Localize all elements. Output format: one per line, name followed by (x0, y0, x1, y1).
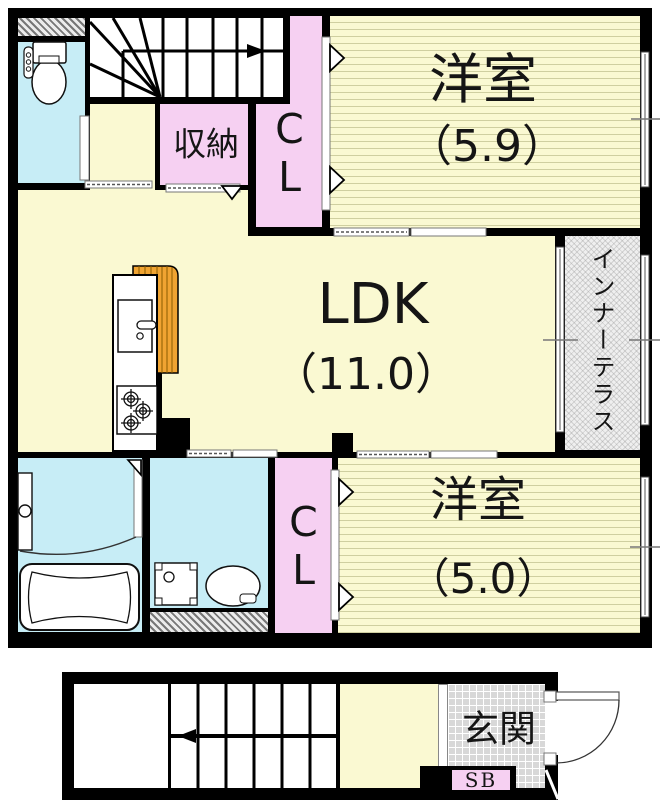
western-room-bottom-label: 洋室 (430, 476, 526, 524)
western-room-bottom-area: （5.0） (408, 558, 559, 600)
ldk-room-main (18, 236, 555, 452)
ldk-label: LDK (317, 277, 428, 333)
western-room-top-area: （5.9） (408, 125, 566, 169)
bathroom (18, 458, 142, 632)
stair-landing (74, 684, 168, 788)
inner-terrace-label: インナーテラス (589, 247, 613, 436)
ldk-room-upper (18, 190, 248, 236)
staircase-upper-area (90, 18, 283, 97)
storage-label: 収納 (173, 128, 239, 161)
upper-hallway (90, 104, 155, 190)
closet-bottom-label: CL (283, 498, 324, 594)
front-door-arc (556, 700, 619, 763)
western-room-top-label: 洋室 (429, 53, 537, 107)
shoe-box-label: SB (465, 770, 497, 790)
ldk-area-label: （11.0） (273, 353, 459, 397)
washroom-hatch-strip (150, 612, 268, 632)
staircase-lower-area (171, 684, 336, 788)
washroom (150, 458, 268, 608)
front-door-leaf (556, 692, 619, 700)
meter-box-hatch (18, 18, 85, 36)
toilet-room (18, 42, 85, 183)
floor-plan: LDK （11.0） 洋室 （5.9） 洋室 （5.0） 収納 CL CL イン… (0, 0, 660, 800)
entrance-label: 玄関 (462, 711, 536, 748)
stairs-bottom-wall (88, 97, 290, 104)
closet-top-label: CL (269, 105, 310, 201)
